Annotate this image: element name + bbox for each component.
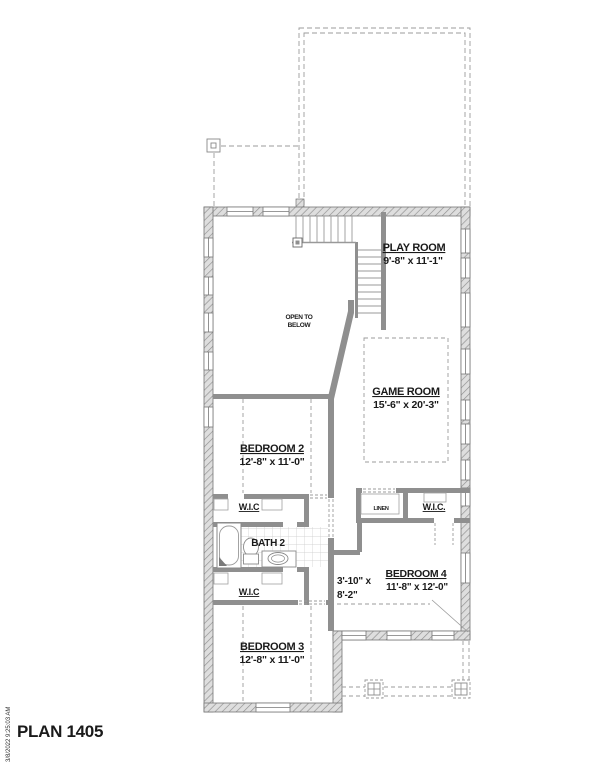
window (461, 349, 470, 374)
bedroom3-label: BEDROOM 3 (240, 641, 304, 653)
wall-closet-partition-top (304, 494, 309, 527)
porch-column (452, 680, 470, 698)
wall-stair-stub (348, 300, 354, 313)
paper-background (0, 0, 614, 768)
porch-column (365, 680, 383, 698)
wall-bedroom3-right (333, 631, 342, 712)
stair-newel-post (293, 238, 302, 247)
wic-bottom-label: W.I.C (239, 587, 260, 597)
window (204, 313, 213, 332)
window (432, 631, 454, 640)
hall-dims-line2: 8'-2" (337, 590, 358, 601)
window (342, 631, 366, 640)
wall-bedroom3-top-a (213, 600, 298, 605)
window (461, 424, 470, 444)
wall-bedroom3-top-b (326, 600, 334, 605)
plan-title: PLAN 1405 (17, 722, 103, 741)
bathtub (217, 523, 241, 568)
window (461, 229, 470, 253)
wic-top-label: W.I.C (239, 502, 260, 512)
wic-right-label: W.I.C. (423, 502, 446, 512)
wall-linen-divider (403, 488, 408, 523)
bedroom4-label: BEDROOM 4 (386, 568, 447, 580)
window (204, 277, 213, 295)
game-room-label: GAME ROOM (372, 386, 440, 398)
wall-wic-top-a (213, 494, 228, 499)
window (461, 258, 470, 278)
window (256, 703, 290, 712)
wall-closet-partition-bottom (304, 567, 309, 605)
wall-linen-bottom (356, 518, 408, 523)
wall-wic-top-b (244, 494, 306, 499)
bedroom4-dims: 11'-8" x 12'-0" (386, 582, 448, 593)
game-room-dims: 15'-6" x 20'-3" (373, 399, 439, 411)
window (263, 207, 289, 216)
floor-plan: PLAY ROOM 9'-8" x 11'-1" OPEN TO BELOW G… (0, 0, 614, 768)
window (461, 553, 470, 583)
window (227, 207, 253, 216)
bedroom2-label: BEDROOM 2 (240, 443, 304, 455)
open-to-below-label-line2: BELOW (288, 322, 312, 329)
wall-bedroom4-stub-h (334, 550, 360, 555)
window (204, 238, 213, 257)
window (204, 352, 213, 370)
wall-bedroom4-stub-v (357, 523, 362, 552)
wall-bedroom2-top (213, 394, 334, 399)
window (461, 400, 470, 420)
wall-linen-left (356, 488, 361, 523)
stair-rail (355, 242, 358, 318)
roof-column-marker (207, 139, 220, 152)
linen-label: LINEN (373, 506, 388, 512)
wall-hall-left-lower (328, 538, 334, 631)
wall-hall-left-upper (328, 394, 334, 498)
play-room-label: PLAY ROOM (383, 242, 446, 254)
window (461, 460, 470, 480)
print-timestamp: 3/8/2022 9:25:03 AM (6, 707, 12, 762)
bedroom3-dims: 12'-8" x 11'-0" (239, 654, 304, 666)
window (204, 407, 213, 427)
play-room-dims: 9'-8" x 11'-1" (383, 255, 443, 267)
bath2-label: BATH 2 (251, 538, 285, 549)
sink-vanity (262, 551, 296, 567)
bedroom2-dims: 12'-8" x 11'-0" (239, 456, 304, 468)
hall-dims-line1: 3'-10" x (337, 576, 372, 587)
window (461, 293, 470, 327)
wall-stairs-right (381, 212, 386, 330)
open-to-below-label-line1: OPEN TO (285, 314, 312, 321)
wall-wicright-bottom-b (454, 518, 470, 523)
window (387, 631, 411, 640)
wall-wicright-bottom-a (408, 518, 434, 523)
